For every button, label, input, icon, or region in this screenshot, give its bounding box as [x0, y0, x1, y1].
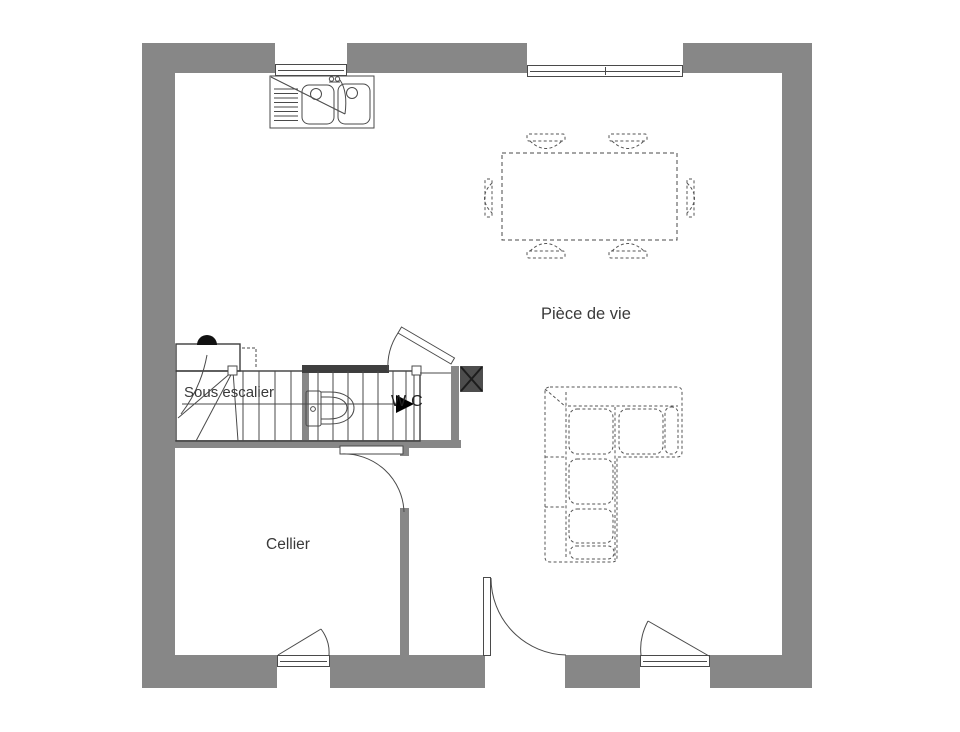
faucet-icon [329, 77, 340, 82]
dining-table [502, 153, 677, 240]
chair-bottom-2 [609, 244, 647, 259]
kitchen-sink [270, 76, 374, 128]
stair-node-right [412, 366, 421, 375]
south-window-casement [641, 621, 709, 656]
entrance-door-swing [491, 578, 566, 655]
corner-sofa [545, 387, 682, 562]
chair-top-1 [527, 134, 565, 149]
cellar-window-casement [278, 629, 329, 655]
floor-plan: Pièce de vie Cellier Sous escalier WC [0, 0, 960, 732]
chair-bottom-1 [527, 244, 565, 259]
plan-linework [0, 0, 960, 732]
cellar-door [340, 446, 404, 512]
cellar-label: Cellier [266, 536, 310, 554]
under-stairs-label: Sous escalier [184, 384, 274, 401]
chair-top-2 [609, 134, 647, 149]
chair-right [687, 179, 695, 217]
toilet [306, 391, 354, 426]
wc-label: WC [391, 393, 428, 411]
stair-post-icon [197, 335, 217, 345]
stair-node-left [228, 366, 237, 375]
chair-left [485, 179, 493, 217]
wc-door [388, 327, 455, 371]
living-room-label: Pièce de vie [541, 305, 631, 324]
